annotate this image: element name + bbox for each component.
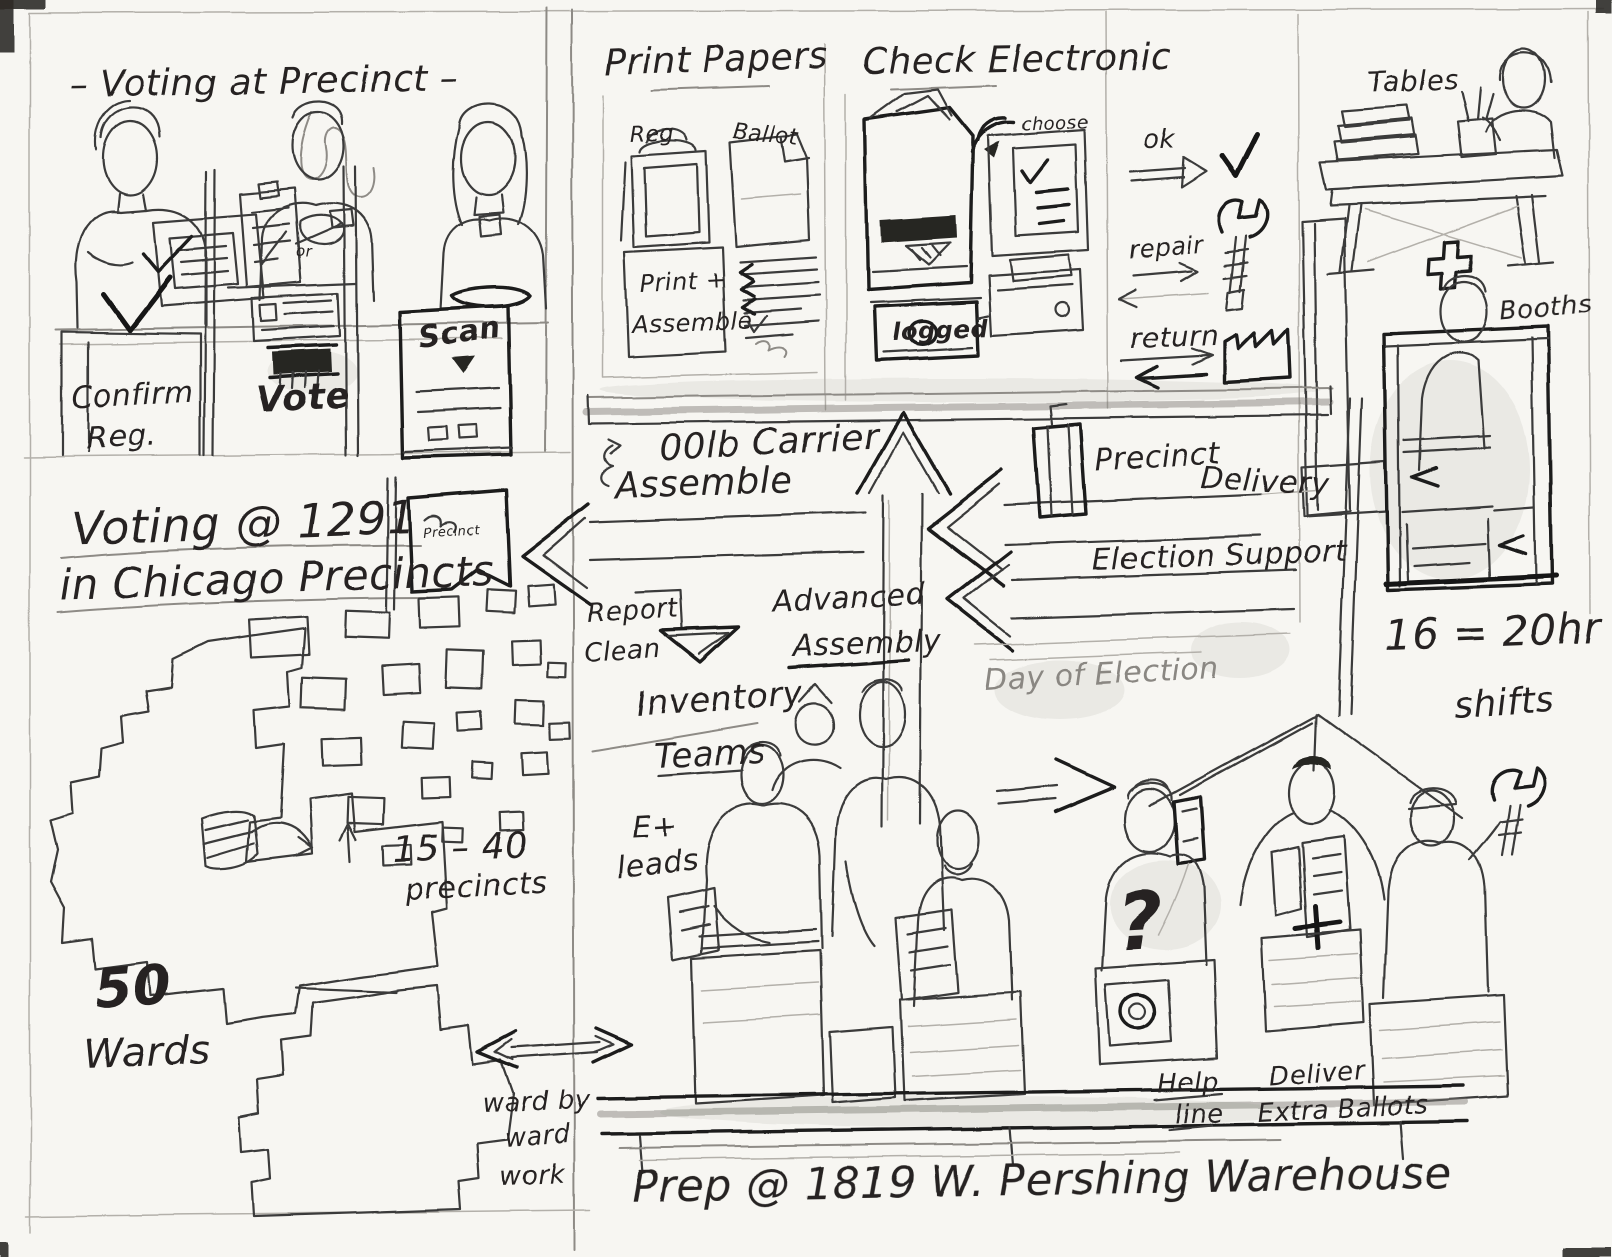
ward-by-ward-label-line3: work [499,1160,565,1192]
return-label: return [1129,319,1220,355]
sketch-page: – Voting at Precinct – Confirm Reg. or V… [0,0,1612,1257]
precincts-word-label: precincts [404,866,549,908]
vote-label: Vote [255,375,351,421]
wards-word-label: Wards [83,1028,212,1078]
logged-label: logged [892,315,989,346]
precinct-delivery-label-line2: Delivery [1200,461,1331,503]
report-clean-label-line2: Clean [583,634,661,669]
question-mark-icon: ? [1114,874,1166,969]
or-label: or [296,242,313,260]
tables-label: Tables [1367,63,1460,99]
precincts-range-label: 15 – 40 [392,825,529,871]
ok-label: ok [1143,125,1175,155]
voting-panel-title: – Voting at Precinct – [69,58,458,106]
reg-label: Reg [629,121,674,148]
help-line-label-line1: Help [1157,1067,1219,1099]
choose-label: choose [1021,112,1088,135]
leads-label-line1: E+ [632,809,679,846]
shifts-label-line1: 16 = 20hr [1384,603,1605,660]
ward-by-ward-label-line2: ward [503,1119,571,1154]
print-papers-title: Print Papers [604,35,829,84]
check-electronic-title: Check Electronic [862,37,1171,83]
advanced-assembly-label-line2: Assembly [790,624,942,664]
wards-count-label: 50 [93,953,173,1021]
print-assemble-note-line1: Print + [639,265,727,298]
marker-scribble [272,349,331,375]
help-line-label-line2: line [1174,1099,1224,1131]
inventory-teams-label-line2: Teams [653,731,767,777]
confirm-reg-label-line2: Reg. [86,417,158,456]
repair-label: repair [1128,231,1206,264]
confirm-reg-label-line1: Confirm [71,375,195,416]
shifts-label-line2: shifts [1453,679,1556,727]
print-assemble-note-line2: Assemble [630,307,753,339]
ward-by-ward-label-line1: ward by [482,1085,591,1119]
sketch-canvas: – Voting at Precinct – Confirm Reg. or V… [0,0,1612,1257]
carrier-label-line2: Assemble [612,460,794,507]
report-clean-label-line1: Report [586,593,679,629]
